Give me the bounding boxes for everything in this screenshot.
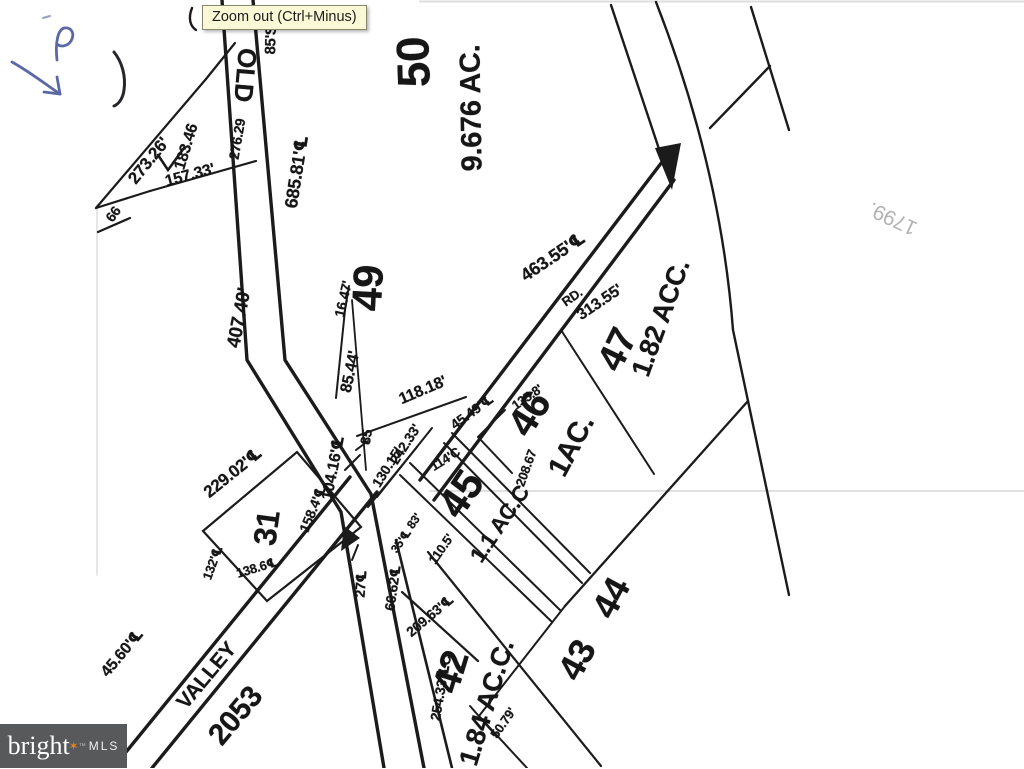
dimension-label: 110.5'	[425, 531, 456, 567]
dimension-label: 118.18'	[397, 373, 450, 409]
dimension-label: 27℄	[352, 570, 371, 598]
dimension-label: 138.6℄	[234, 554, 279, 582]
handwritten-note-1799: 1799.	[865, 196, 921, 239]
parcel-50-area: 9.676 AC.	[454, 44, 489, 171]
dimension-label: 407.40'	[223, 286, 256, 350]
plat-map-viewer[interactable]: 509.676 AC.49471.82 ACC.461AC.451.1 AC.C…	[0, 0, 1024, 768]
dimension-label: 66	[102, 203, 124, 224]
dimension-label: 209.63'℄	[403, 591, 457, 640]
parcel-43-number: 43	[549, 633, 605, 688]
brightmls-watermark: bright✶™MLS	[0, 724, 127, 768]
star-icon: ✶	[69, 739, 79, 753]
dimension-label: 276.29	[226, 117, 249, 160]
dimension-label: 158.4'℄	[296, 483, 330, 535]
brightmls-mls-text: MLS	[89, 739, 120, 753]
road-route-2053: 2053	[202, 680, 270, 752]
trademark-symbol: ™	[79, 743, 86, 750]
parcel-47-area: 1.82 ACC.	[626, 255, 697, 381]
dimension-label: 463.55'℄	[517, 228, 589, 286]
dimension-label: 229.02'℄	[200, 444, 266, 503]
road-label-old: OLD	[227, 47, 263, 103]
brightmls-brand-text: bright	[8, 733, 70, 759]
parcel-44-number: 44	[583, 571, 639, 626]
dimension-label: 45.60'℄	[96, 625, 147, 681]
parcel-50-number: 50	[385, 36, 441, 88]
dimension-label: 35'℄	[388, 526, 414, 555]
dimension-label: 685.81'℄	[281, 134, 313, 209]
parcel-31-number: 31	[246, 508, 288, 548]
dimension-label: 85	[357, 428, 375, 446]
dimension-label: 85.44'	[338, 350, 364, 395]
zoom-tooltip-text: Zoom out (Ctrl+Minus)	[212, 9, 357, 25]
dimension-label: 45.49'℄	[447, 391, 496, 433]
dimension-label: 208.67	[512, 448, 539, 489]
plat-labels-layer: 509.676 AC.49471.82 ACC.461AC.451.1 AC.C…	[0, 0, 1024, 768]
dimension-label: 66.62℄	[381, 564, 404, 612]
dimension-label: 313.55'	[574, 281, 626, 324]
dimension-label: 130.15'	[369, 444, 406, 490]
zoom-tooltip: Zoom out (Ctrl+Minus)	[202, 5, 367, 30]
dimension-label: 132'℄	[200, 544, 227, 582]
